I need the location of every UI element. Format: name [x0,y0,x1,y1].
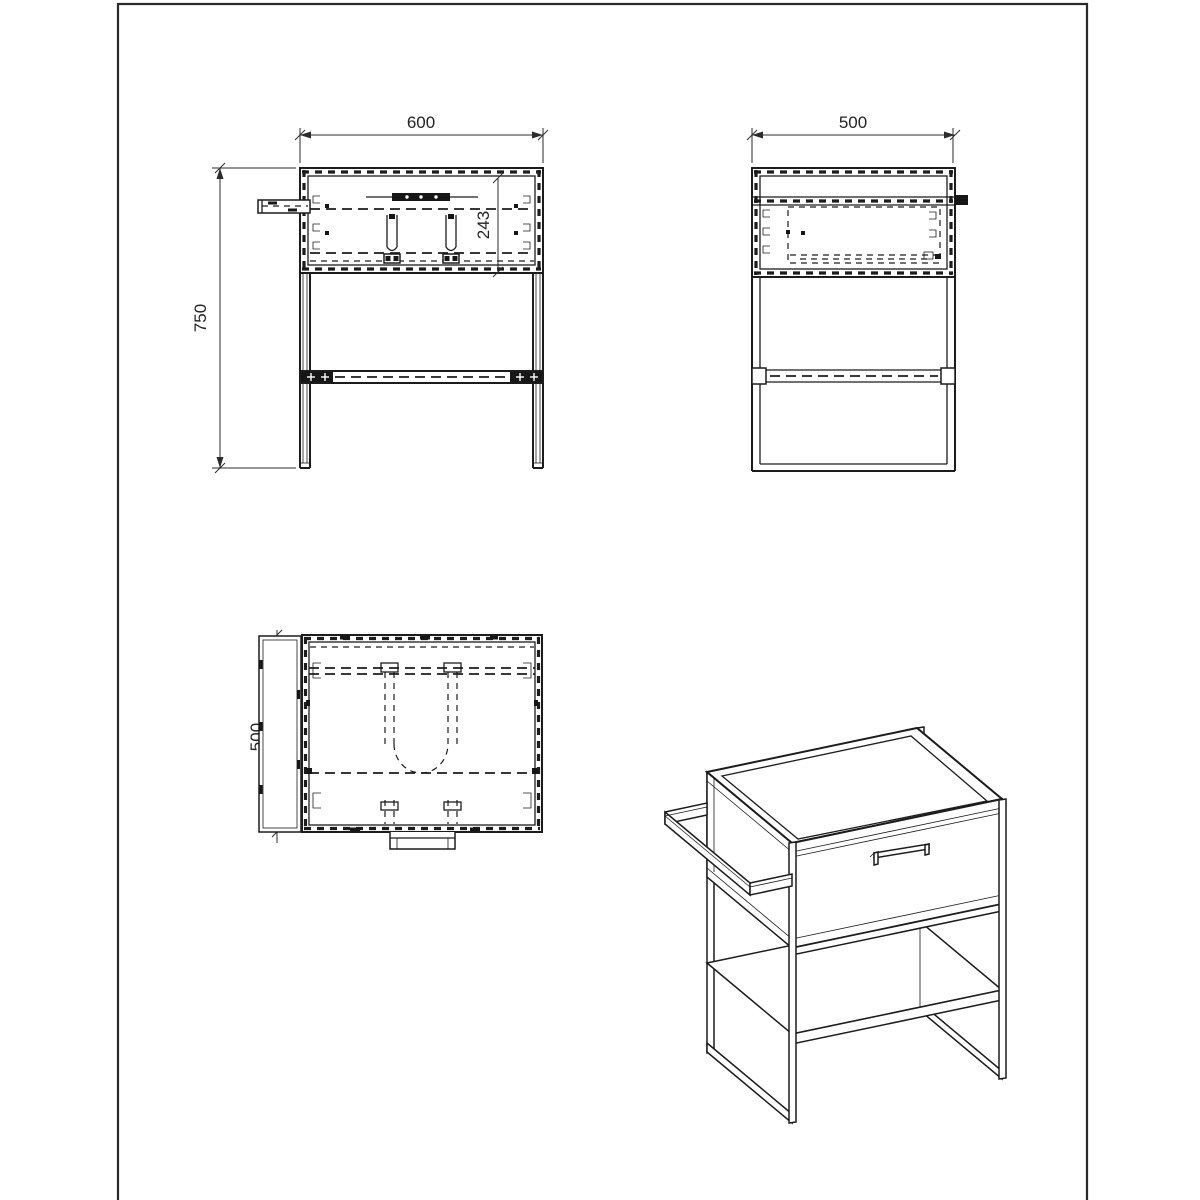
dim-front-width-label: 600 [407,113,435,132]
iso-bottom-rail-left [707,1043,792,1123]
front-towel-bar [258,200,310,213]
side-mid-rail [752,368,955,384]
dim-side-depth: 500 [747,113,960,163]
dim-side-depth-label: 500 [839,113,867,132]
side-frame [752,277,955,471]
dim-front-height-label: 750 [191,304,210,332]
drawing-sheet: 600 750 [0,0,1200,1200]
side-towel-bar-end [955,195,968,205]
technical-drawing: 600 750 [0,0,1200,1200]
dim-front-drawer-height-label: 243 [474,211,493,239]
side-view: 500 [747,113,968,471]
side-cabinet-box [752,168,955,277]
front-mid-rail [300,371,543,383]
plan-handle [390,832,455,849]
front-cabinet-box [300,168,543,273]
plan-view: 500 [247,630,542,849]
dim-front-width: 600 [295,113,548,163]
plan-towel-bar [259,636,301,832]
iso-view [665,727,1006,1123]
front-view: 600 750 [191,113,548,473]
iso-front-right-post [999,799,1006,1079]
plan-cabinet-box [302,635,542,832]
